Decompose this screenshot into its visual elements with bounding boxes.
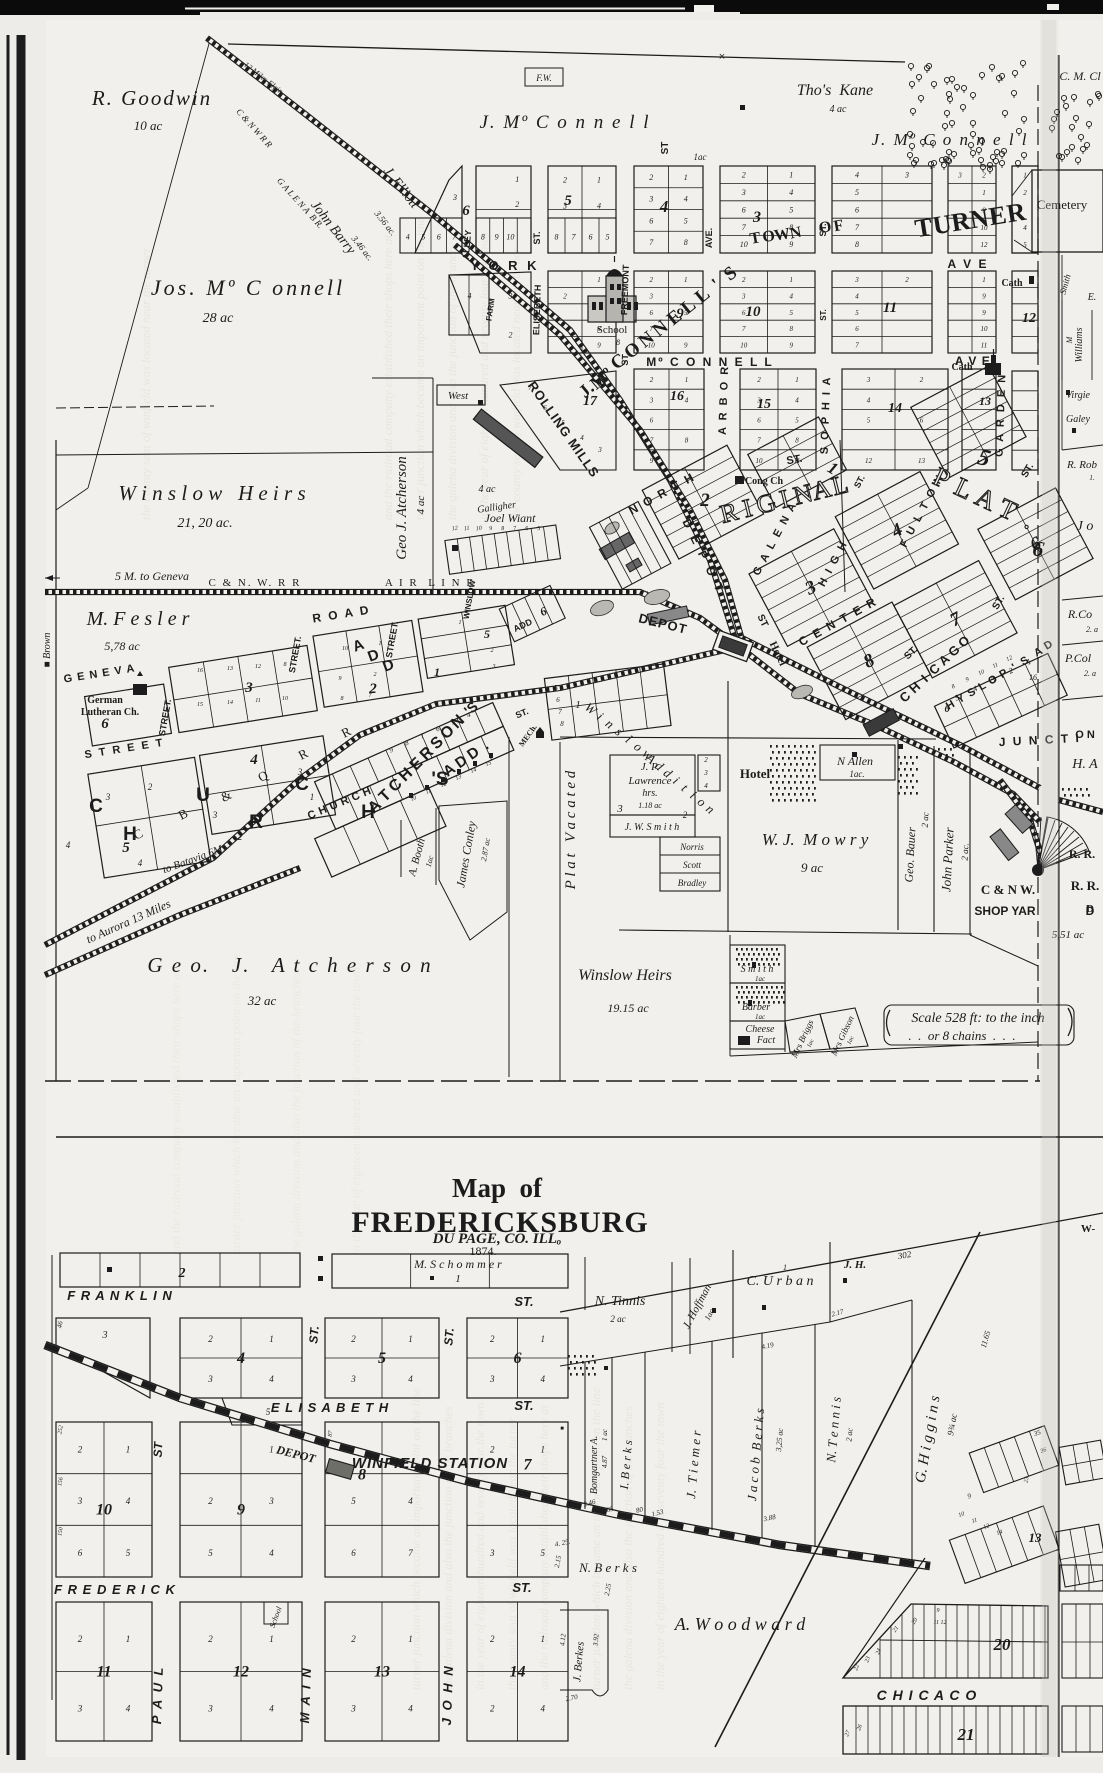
svg-text:3: 3 [105, 792, 111, 802]
svg-text:21: 21 [957, 1725, 975, 1744]
svg-text:11: 11 [981, 342, 987, 350]
svg-text:A V E: A V E [948, 257, 989, 271]
svg-text:32 ac: 32 ac [247, 993, 277, 1008]
svg-text:4: 4 [408, 1374, 413, 1384]
svg-text:Geo J. Atcherson: Geo J. Atcherson [394, 456, 410, 559]
svg-text:J. P.: J. P. [641, 761, 659, 773]
svg-text:W i n s l o w H e i r s: W i n s l o w H e i r s [118, 481, 305, 505]
svg-text:2: 2 [490, 1334, 495, 1344]
svg-text:and the railroad company estab: and the railroad company established the… [169, 969, 183, 1255]
svg-text:1: 1 [126, 1444, 131, 1454]
svg-text:1: 1 [434, 665, 440, 679]
svg-text:10: 10 [96, 1502, 112, 1519]
svg-text:10: 10 [475, 526, 482, 533]
svg-text:5,78 ac: 5,78 ac [104, 639, 140, 653]
svg-text:12: 12 [981, 241, 989, 249]
svg-text:5: 5 [561, 419, 565, 427]
svg-text:C. U r b a n: C. U r b a n [747, 1274, 814, 1289]
svg-text:1: 1 [515, 175, 519, 184]
svg-text:3: 3 [268, 1496, 274, 1506]
svg-text:Jos. Mº C onnell: Jos. Mº C onnell [151, 275, 345, 300]
svg-text:7: 7 [408, 1548, 413, 1558]
svg-text:2: 2 [148, 782, 153, 792]
svg-text:U: U [196, 785, 210, 806]
svg-text:12: 12 [865, 457, 873, 465]
svg-text:4.12: 4.12 [558, 1633, 567, 1646]
svg-text:4: 4 [855, 171, 859, 180]
svg-text:9: 9 [982, 309, 986, 317]
svg-text:3: 3 [741, 188, 746, 197]
svg-text:6: 6 [78, 1548, 83, 1558]
svg-text:4: 4 [790, 292, 794, 300]
svg-text:12: 12 [451, 526, 458, 533]
svg-text:2: 2 [490, 1704, 495, 1714]
svg-text:5,51 ac: 5,51 ac [1052, 929, 1085, 941]
svg-text:2: 2 [351, 1634, 356, 1644]
svg-text:J O H N: J O H N [439, 1664, 456, 1725]
svg-text:13: 13 [227, 666, 233, 672]
svg-text:4: 4 [408, 1496, 413, 1506]
svg-text:ST: ST [660, 142, 671, 155]
svg-text:5: 5 [867, 417, 871, 425]
svg-text:2 ac: 2 ac [920, 812, 931, 828]
svg-text:4: 4 [795, 396, 799, 404]
svg-text:P l a t V a c a t e d: P l a t V a c a t e d [563, 770, 579, 890]
svg-text:J. Mº C o n n e l l: J. Mº C o n n e l l [871, 130, 1028, 149]
svg-text:1: 1 [269, 1444, 274, 1454]
svg-text:4: 4 [659, 197, 669, 216]
svg-text:2: 2 [208, 1496, 213, 1506]
svg-text:3: 3 [489, 1374, 495, 1384]
svg-text:2: 2 [491, 648, 494, 654]
svg-text:6: 6 [650, 309, 654, 317]
svg-text:M. S c h o m m e r: M. S c h o m m e r [413, 1257, 502, 1271]
svg-text:1ac.: 1ac. [849, 769, 864, 779]
svg-text:5: 5 [795, 417, 799, 425]
svg-text:3: 3 [77, 1704, 83, 1714]
svg-text:Map of: Map of [452, 1173, 543, 1203]
svg-text:7: 7 [528, 384, 532, 392]
svg-text:9: 9 [339, 676, 342, 682]
svg-text:FREEMONT: FREEMONT [619, 264, 631, 315]
svg-text:6: 6 [589, 232, 593, 241]
svg-text:9: 9 [937, 1608, 940, 1614]
svg-text:7: 7 [855, 342, 859, 350]
svg-text:. . or 8 chains . . .: . . or 8 chains . . . [908, 1028, 1015, 1043]
svg-text:4: 4 [408, 1704, 413, 1714]
svg-text:School: School [597, 324, 628, 336]
svg-text:P.Col: P.Col [1064, 651, 1092, 665]
svg-text:3: 3 [492, 664, 496, 670]
svg-text:1 ac: 1 ac [601, 1428, 609, 1441]
svg-text:1: 1 [575, 699, 581, 711]
svg-text:W-: W- [1081, 1223, 1096, 1235]
svg-text:2: 2 [509, 330, 513, 339]
svg-text:1: 1 [541, 1634, 546, 1644]
svg-text:Geo. Bauer: Geo. Bauer [902, 826, 919, 882]
svg-text:13: 13 [374, 1664, 390, 1681]
svg-text:3: 3 [244, 680, 253, 696]
svg-text:ST.: ST. [819, 309, 828, 321]
svg-text:J. Mº C o n n e l l: J. Mº C o n n e l l [479, 112, 650, 133]
svg-text:■: ■ [560, 1426, 564, 1432]
svg-text:Joel Wiant: Joel Wiant [485, 511, 537, 525]
svg-text:Mº C O N N E L L: Mº C O N N E L L [646, 355, 774, 369]
svg-text:2. a: 2. a [1084, 669, 1096, 678]
svg-text:6: 6 [351, 1548, 356, 1558]
svg-text:J. W. S m i t h: J. W. S m i t h [625, 822, 680, 833]
svg-text:4: 4 [541, 1374, 546, 1384]
svg-text:in the year of eighteen hundre: in the year of eighteen hundred and seve… [473, 1402, 487, 1690]
svg-text:1: 1 [685, 376, 689, 384]
svg-text:and the railroad company estab: and the railroad company established the… [381, 234, 395, 520]
svg-text:M: M [1065, 335, 1074, 344]
svg-text:2: 2 [920, 376, 924, 384]
svg-text:5: 5 [541, 1548, 546, 1558]
svg-text:M. F e s l e r: M. F e s l e r [86, 608, 190, 630]
svg-text:4: 4 [269, 1374, 274, 1384]
svg-text:turner junction which became a: turner junction which became an importan… [413, 217, 427, 520]
svg-text:8: 8 [795, 437, 799, 445]
svg-text:R: R [249, 812, 263, 833]
svg-text:6: 6 [649, 216, 653, 225]
svg-text:1: 1 [269, 1634, 274, 1644]
svg-text:1.: 1. [1089, 474, 1095, 482]
svg-text:10: 10 [282, 696, 288, 702]
svg-text:German: German [87, 695, 123, 706]
svg-text:9: 9 [237, 1502, 245, 1519]
svg-text:■ Brown: ■ Brown [42, 633, 53, 668]
svg-text:28 ac: 28 ac [203, 311, 235, 326]
svg-text:5: 5 [484, 627, 490, 641]
svg-text:1ac: 1ac [694, 152, 707, 162]
svg-text:3: 3 [508, 291, 513, 300]
svg-text:1: 1 [126, 1634, 131, 1644]
svg-text:8: 8 [555, 232, 559, 241]
svg-text:4: 4 [468, 291, 472, 300]
svg-text:3: 3 [207, 1704, 213, 1714]
svg-text:1: 1 [684, 276, 688, 284]
svg-text:12: 12 [233, 1664, 249, 1681]
svg-text:C. M. Cl: C. M. Cl [1059, 69, 1101, 83]
svg-text:2 ac.: 2 ac. [960, 843, 971, 861]
svg-text:in the year of eighteen hundre: in the year of eighteen hundred and seve… [653, 1402, 667, 1690]
svg-text:F R A N K L I N: F R A N K L I N [67, 1288, 173, 1303]
svg-text:1: 1 [597, 276, 601, 284]
svg-text:2: 2 [351, 1334, 356, 1344]
svg-text:7: 7 [757, 437, 761, 445]
svg-text:Scott: Scott [683, 860, 701, 870]
svg-text:6: 6 [855, 205, 859, 214]
svg-text:3: 3 [703, 769, 708, 777]
svg-text:5: 5 [790, 309, 794, 317]
svg-text:Lawrence: Lawrence [628, 775, 672, 787]
svg-text:2: 2 [683, 810, 688, 820]
svg-text:2: 2 [78, 1444, 83, 1454]
svg-text:8: 8 [790, 325, 794, 333]
svg-text:2: 2 [699, 490, 710, 511]
svg-text:3: 3 [741, 292, 746, 300]
svg-text:C: C [295, 774, 309, 795]
svg-text:Winslow Heirs: Winslow Heirs [578, 967, 672, 984]
svg-text:1: 1 [541, 1444, 546, 1454]
svg-text:14: 14 [227, 699, 233, 706]
svg-text:5: 5 [554, 684, 558, 692]
svg-text:6: 6 [543, 404, 547, 412]
svg-text:4: 4 [580, 434, 584, 442]
svg-text:J o: J o [1077, 519, 1094, 534]
svg-text:3: 3 [562, 201, 567, 210]
svg-text:2: 2 [563, 175, 567, 184]
svg-text:7: 7 [650, 437, 654, 445]
svg-text:23: 23 [1024, 1476, 1031, 1483]
svg-text:1.18 ac: 1.18 ac [638, 801, 662, 810]
svg-text:9 ac: 9 ac [801, 860, 823, 875]
svg-text:R.Co: R.Co [1067, 607, 1092, 621]
svg-text:4: 4 [685, 396, 689, 404]
svg-text:10: 10 [506, 232, 514, 241]
svg-text:9: 9 [650, 457, 654, 465]
svg-text:4: 4 [541, 1704, 546, 1714]
svg-text:3: 3 [207, 1374, 213, 1384]
svg-text:4: 4 [855, 292, 859, 300]
svg-text:J. H.: J. H. [843, 1259, 866, 1271]
svg-text:Y O R K: Y O R K [470, 258, 539, 273]
svg-text:1: 1 [379, 641, 382, 647]
svg-text:15: 15 [197, 702, 203, 708]
svg-text:10: 10 [981, 325, 989, 333]
svg-text:13: 13 [1029, 1530, 1043, 1545]
svg-text:Hotel: Hotel [740, 766, 771, 781]
svg-text:1: 1 [982, 189, 986, 197]
svg-text:4: 4 [684, 195, 688, 204]
svg-text:6: 6 [556, 696, 560, 704]
svg-text:5: 5 [855, 309, 859, 317]
svg-text:A.: A. [589, 1436, 600, 1446]
svg-text:R. Goodwin: R. Goodwin [91, 86, 212, 110]
svg-text:the galena division and also t: the galena division and also the junctio… [445, 236, 459, 520]
svg-text:Scale 528 ft: to the inch: Scale 528 ft: to the inch [911, 1011, 1044, 1026]
svg-text:5: 5 [684, 216, 688, 225]
svg-text:11: 11 [255, 698, 261, 704]
svg-text:D: D [1086, 903, 1094, 915]
svg-text:12: 12 [1022, 311, 1036, 326]
svg-text:2: 2 [238, 832, 243, 842]
svg-text:R. R.: R. R. [1069, 847, 1095, 861]
svg-text:6: 6 [101, 716, 109, 732]
svg-text:F.W.: F.W. [535, 73, 552, 83]
svg-text:Cheese: Cheese [746, 1024, 775, 1035]
svg-text:Galey: Galey [1066, 414, 1090, 425]
svg-text:Barber: Barber [742, 1002, 770, 1013]
svg-text:W. J. M o w r y: W. J. M o w r y [762, 830, 869, 849]
svg-text:A V E.: A V E. [955, 354, 995, 368]
svg-text:16: 16 [670, 389, 684, 404]
svg-text:3: 3 [102, 1330, 108, 1341]
svg-text:5: 5 [126, 1548, 131, 1558]
svg-text:Bomgartner: Bomgartner [589, 1446, 600, 1494]
svg-text:8: 8 [284, 662, 287, 668]
svg-text:ST.: ST. [441, 1327, 456, 1346]
svg-text:R. R.: R. R. [1071, 878, 1100, 893]
svg-text:F R E D E R I C K: F R E D E R I C K [54, 1582, 176, 1597]
svg-text:WINFIELD STATION: WINFIELD STATION [352, 1455, 508, 1472]
svg-text:ST.: ST. [514, 1398, 533, 1413]
svg-text:6: 6 [855, 325, 859, 333]
svg-text:O N: O N [1075, 729, 1095, 741]
svg-text:Tho's Kane: Tho's Kane [797, 82, 873, 99]
svg-text:9: 9 [982, 292, 986, 300]
svg-text:2: 2 [704, 756, 708, 764]
svg-text:14: 14 [510, 1664, 526, 1681]
svg-text:6: 6 [462, 203, 470, 219]
svg-text:13: 13 [918, 457, 926, 465]
svg-text:3: 3 [756, 396, 761, 404]
svg-text:C & N. W. R R: C & N. W. R R [209, 577, 302, 589]
svg-text:11: 11 [464, 526, 470, 533]
svg-text:E.: E. [1087, 292, 1097, 303]
svg-text:9: 9 [790, 342, 794, 350]
svg-text:5: 5 [606, 232, 610, 241]
svg-text:3: 3 [212, 810, 218, 820]
svg-text:the galena division and also t: the galena division and also the junctio… [289, 971, 303, 1255]
svg-text:2: 2 [742, 171, 746, 180]
svg-text:S m i t h: S m i t h [741, 964, 774, 975]
svg-text:A R B O R: A R B O R [717, 365, 731, 436]
svg-text:4: 4 [138, 858, 143, 868]
svg-text:3: 3 [866, 376, 871, 384]
svg-text:1: 1 [455, 1273, 461, 1285]
svg-text:19.15 ac: 19.15 ac [607, 1001, 649, 1015]
svg-text:1: 1 [408, 1334, 413, 1344]
svg-text:8: 8 [560, 720, 564, 728]
svg-text:5: 5 [789, 205, 793, 214]
svg-text:1: 1 [459, 620, 462, 626]
svg-text:6: 6 [742, 309, 746, 317]
svg-text:2: 2 [490, 1634, 495, 1644]
svg-text:3: 3 [649, 396, 654, 404]
svg-text:1: 1 [795, 376, 799, 384]
svg-text:West: West [448, 390, 469, 402]
svg-text:3: 3 [854, 276, 859, 284]
svg-text:3: 3 [648, 195, 653, 204]
svg-text:3: 3 [452, 193, 457, 202]
svg-text:1: 1 [408, 1634, 413, 1644]
svg-text:M A I N: M A I N [297, 1666, 314, 1724]
svg-text:ST.: ST. [532, 231, 542, 244]
svg-text:2: 2 [905, 276, 909, 284]
svg-text:11 12: 11 12 [933, 1620, 946, 1626]
svg-text:2: 2 [757, 376, 761, 384]
svg-text:3: 3 [597, 446, 602, 454]
svg-text:9: 9 [495, 232, 499, 241]
svg-text:7: 7 [558, 708, 562, 716]
svg-text:2: 2 [208, 1334, 213, 1344]
svg-text:10: 10 [342, 646, 348, 652]
svg-text:Norris: Norris [679, 842, 704, 852]
svg-text:2: 2 [1023, 189, 1027, 197]
svg-text:4: 4 [704, 782, 708, 790]
svg-text:14: 14 [888, 401, 902, 416]
svg-text:1: 1 [783, 1263, 787, 1272]
svg-text:1874.: 1874. [470, 1244, 497, 1258]
svg-text:5: 5 [1023, 241, 1027, 249]
svg-text:H: H [123, 824, 137, 845]
svg-text:C & N W.: C & N W. [981, 882, 1035, 897]
svg-text:1: 1 [269, 1334, 274, 1344]
svg-text:C H I C A C O: C H I C A C O [877, 1687, 978, 1703]
svg-text:Williams: Williams [1074, 327, 1085, 362]
svg-text:1: 1 [597, 175, 601, 184]
svg-text:C: C [89, 796, 103, 817]
svg-text:4: 4 [789, 188, 793, 197]
svg-text:4: 4 [126, 1704, 131, 1714]
svg-text:10: 10 [746, 304, 762, 320]
svg-text:3: 3 [904, 171, 909, 180]
svg-text:16: 16 [197, 668, 203, 674]
svg-text:7: 7 [742, 325, 746, 333]
svg-text:2 ac: 2 ac [844, 1427, 854, 1442]
svg-text:N. B e r k s: N. B e r k s [578, 1560, 637, 1575]
svg-text:8: 8 [685, 437, 689, 445]
svg-text:20: 20 [993, 1635, 1012, 1654]
svg-text:6: 6 [945, 704, 950, 715]
svg-text:3: 3 [489, 1548, 495, 1558]
svg-text:ST.: ST. [306, 1325, 321, 1344]
svg-text:2: 2 [78, 1634, 83, 1644]
svg-text:4 ac: 4 ac [479, 484, 497, 495]
svg-text:10: 10 [740, 342, 748, 350]
svg-text:3: 3 [77, 1496, 83, 1506]
svg-text:5: 5 [208, 1548, 213, 1558]
svg-text:ST: ST [151, 1440, 166, 1458]
svg-text:ST.: ST. [512, 1580, 531, 1595]
svg-text:2: 2 [208, 1634, 213, 1644]
svg-text:3: 3 [616, 803, 623, 815]
svg-text:6: 6 [650, 417, 654, 425]
svg-text:4: 4 [269, 1704, 274, 1714]
svg-text:6: 6 [742, 205, 746, 214]
svg-text:turner junction which became a: turner junction which became an importan… [229, 952, 243, 1255]
svg-text:2: 2 [649, 173, 653, 182]
svg-text:4 ac: 4 ac [415, 496, 427, 515]
svg-text:N. Tinnis: N. Tinnis [594, 1294, 646, 1309]
svg-text:7: 7 [524, 1457, 533, 1474]
svg-text:8: 8 [684, 238, 688, 247]
svg-text:Lutheran Ch.: Lutheran Ch. [81, 707, 140, 718]
svg-text:10 ac: 10 ac [134, 118, 163, 133]
svg-text:5: 5 [351, 1496, 356, 1506]
svg-text:3: 3 [649, 292, 654, 300]
svg-text:4: 4 [406, 232, 410, 241]
svg-text:turner junction which became a: turner junction which became an importan… [409, 1387, 423, 1690]
svg-text:R. Rob: R. Rob [1066, 459, 1097, 471]
svg-text:3: 3 [752, 209, 761, 226]
svg-text:4: 4 [867, 396, 871, 404]
svg-text:2: 2 [982, 172, 986, 180]
svg-text:11: 11 [96, 1664, 111, 1681]
svg-text:10: 10 [740, 240, 748, 249]
svg-text:4: 4 [597, 201, 601, 210]
svg-text:AVE.: AVE. [704, 228, 714, 248]
svg-text:6: 6 [514, 1350, 522, 1367]
svg-text:2. a: 2. a [1086, 625, 1098, 634]
svg-text:4: 4 [66, 840, 71, 850]
svg-text:2: 2 [563, 292, 567, 300]
svg-text:11: 11 [883, 300, 897, 316]
svg-text:4: 4 [126, 1496, 131, 1506]
svg-text:9: 9 [684, 342, 688, 350]
